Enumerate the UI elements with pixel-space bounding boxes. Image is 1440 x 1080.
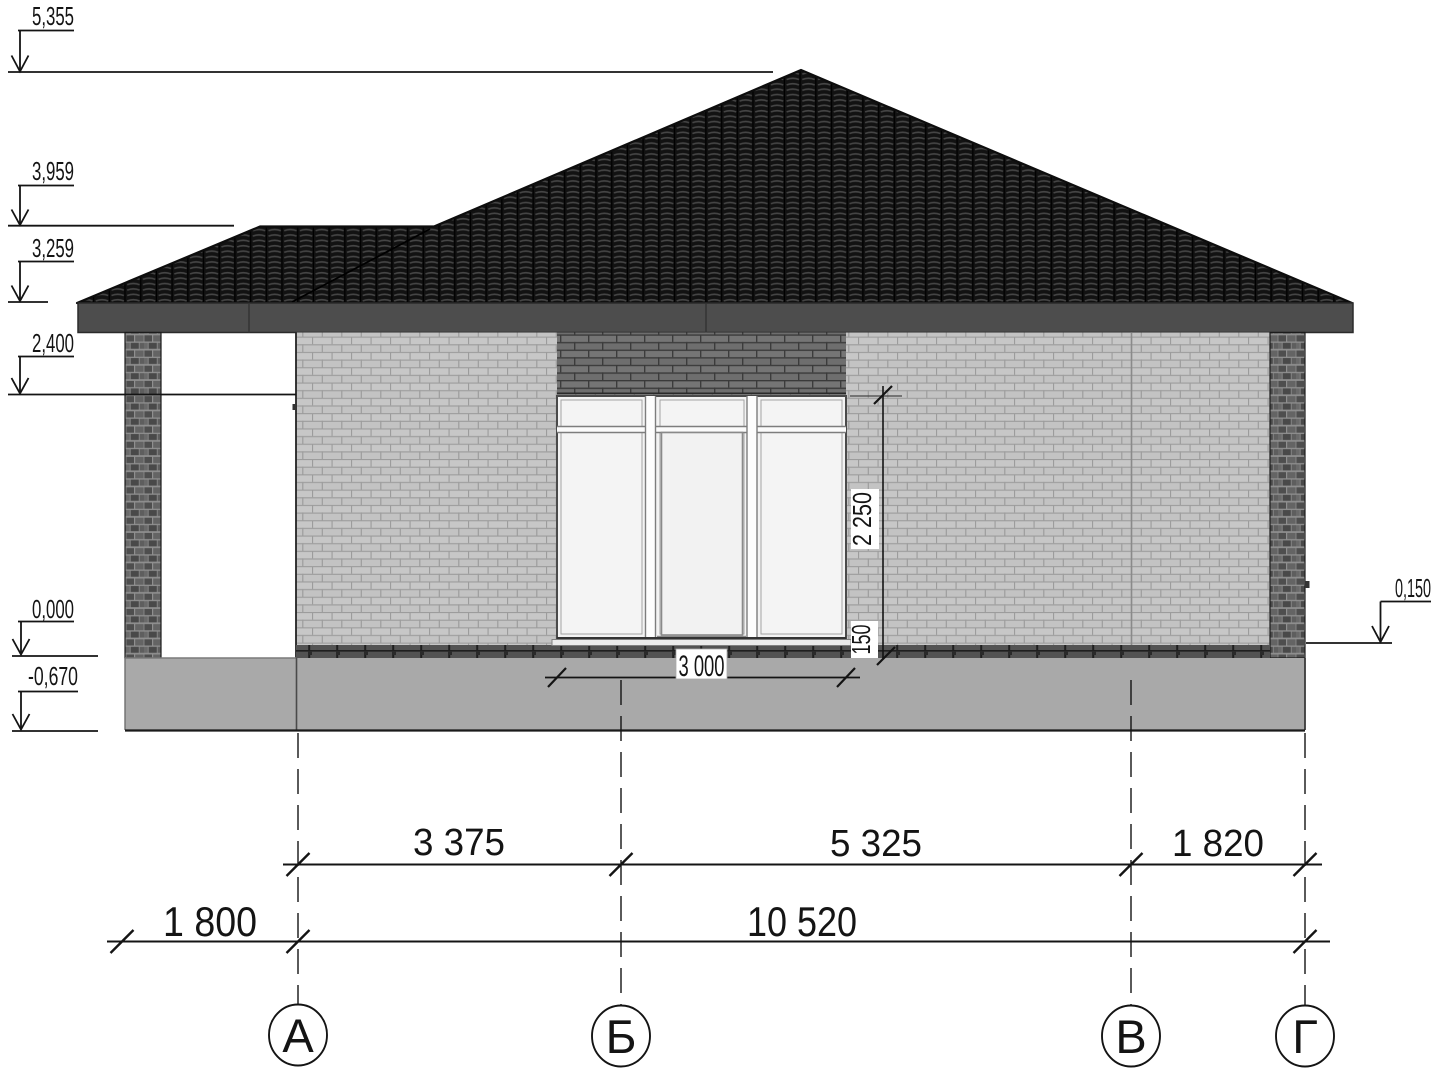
svg-text:1 820: 1 820: [1172, 823, 1264, 865]
svg-text:150: 150: [846, 625, 876, 655]
svg-text:3,959: 3,959: [32, 156, 74, 186]
svg-text:3 000: 3 000: [679, 650, 725, 683]
svg-text:1 800: 1 800: [163, 898, 257, 945]
svg-text:Б: Б: [606, 1010, 637, 1063]
svg-text:2 250: 2 250: [847, 492, 877, 546]
svg-text:5 325: 5 325: [830, 823, 922, 865]
svg-text:2,400: 2,400: [32, 328, 74, 358]
svg-text:А: А: [282, 1009, 314, 1062]
svg-text:Г: Г: [1292, 1010, 1317, 1063]
svg-text:0,000: 0,000: [32, 594, 74, 624]
svg-text:3 375: 3 375: [413, 822, 505, 864]
svg-text:10 520: 10 520: [747, 898, 857, 945]
svg-text:В: В: [1115, 1010, 1146, 1063]
svg-text:0,150: 0,150: [1395, 573, 1431, 603]
svg-text:5,355: 5,355: [32, 1, 74, 31]
svg-text:3,259: 3,259: [32, 233, 74, 263]
svg-text:-0,670: -0,670: [28, 661, 78, 691]
